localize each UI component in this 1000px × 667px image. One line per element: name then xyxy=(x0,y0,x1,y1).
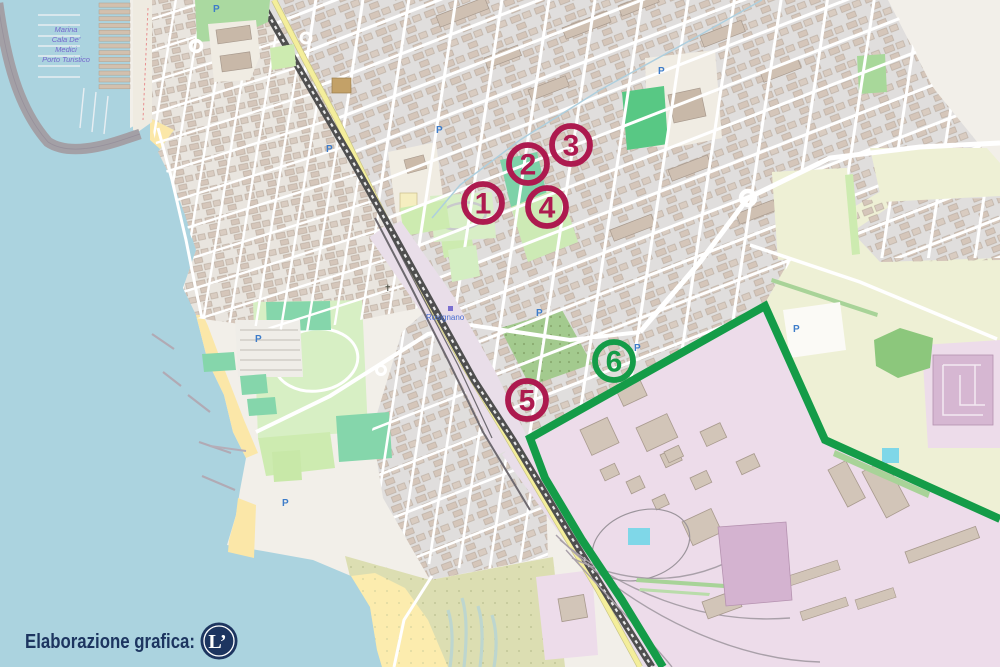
svg-text:L’: L’ xyxy=(208,631,226,653)
svg-text:P: P xyxy=(282,498,289,509)
svg-text:P: P xyxy=(255,334,262,345)
svg-text:1: 1 xyxy=(475,188,492,221)
svg-text:Rosignano: Rosignano xyxy=(426,313,465,322)
svg-text:5: 5 xyxy=(519,385,536,418)
svg-text:P: P xyxy=(436,125,443,136)
svg-text:4: 4 xyxy=(539,192,556,225)
svg-text:✝: ✝ xyxy=(384,283,392,293)
svg-text:P: P xyxy=(793,324,800,335)
svg-text:Elaborazione grafica:: Elaborazione grafica: xyxy=(25,630,195,653)
svg-text:Marina: Marina xyxy=(55,25,78,34)
svg-text:2: 2 xyxy=(520,149,537,182)
svg-text:Medici: Medici xyxy=(55,45,77,54)
svg-text:P: P xyxy=(634,343,641,354)
svg-text:6: 6 xyxy=(606,346,623,379)
svg-text:Cala De': Cala De' xyxy=(52,35,81,44)
svg-text:P: P xyxy=(213,4,220,15)
svg-text:P: P xyxy=(326,144,333,155)
svg-text:3: 3 xyxy=(563,130,580,163)
svg-text:P: P xyxy=(658,66,665,77)
svg-text:P: P xyxy=(536,308,543,319)
svg-text:Porto Turistico: Porto Turistico xyxy=(42,55,90,64)
